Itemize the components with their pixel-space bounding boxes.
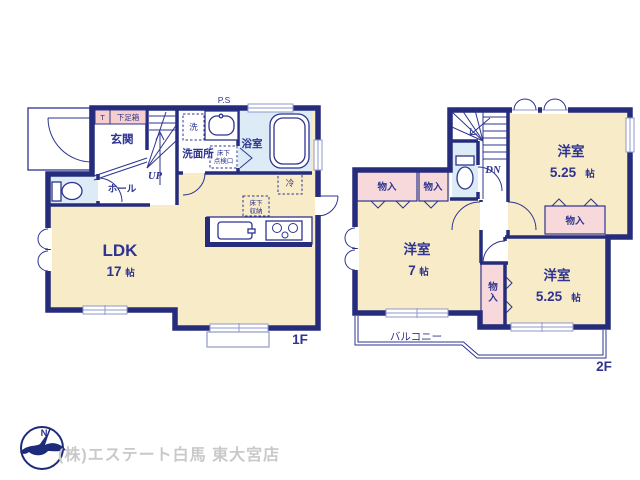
shoe-box-label: 下足箱 [117,112,140,122]
hatch-label-1: 床下 [217,148,231,157]
storage-label-2: 収納 [250,206,263,215]
floor-plan-svg: P.S T 下足箱 玄関 洗 洗面所 床下 点検口 浴室 UP ホール 冷 床下… [0,0,640,480]
ldk-size-unit: 帖 [125,267,135,279]
hatch-label-2: 点検口 [214,156,234,165]
room-south-size-unit: 帖 [571,292,581,304]
window-top-bath [248,104,293,112]
window-east-bath [314,140,322,170]
kitchen-sink-icon [218,222,252,239]
room-south-label: 洋室 [544,267,572,283]
window-west-awning-2 [38,250,52,271]
window-east-room-top [626,118,634,152]
floor-1f: P.S T 下足箱 玄関 洗 洗面所 床下 点検口 浴室 UP ホール 冷 床下… [28,95,338,347]
floor1-label: 1F [292,332,308,347]
company-name: (株)エステート白馬 東大宮店 [58,445,280,464]
window-south-ldk [83,305,127,315]
toilet2-icon [456,156,474,189]
room-west-size-unit: 帖 [419,266,429,278]
window-top-casement-1 [512,99,538,114]
kitchen-back-door [315,196,338,216]
compass-n-label: N [41,428,48,439]
window-west-awning-2f-1 [345,227,359,248]
closet-west-1-label: 物入 [377,181,397,193]
ldk-size: 17 [106,264,121,279]
room-west-size: 7 [408,263,416,278]
floor2-label: 2F [596,359,612,374]
room-west-label: 洋室 [404,241,431,257]
ps-label: P.S [218,95,231,105]
closet-room-top-label: 物入 [565,215,585,227]
window-west-awning-1 [38,228,52,249]
window-west-awning-2f-2 [345,249,359,270]
room-top-size: 5.25 [550,165,577,180]
kitchen-counter [205,217,312,247]
closet-west-2-label: 物入 [423,181,443,193]
up-label: UP [148,171,163,182]
window-south-room-south [511,322,573,332]
balcony-label: バルコニー [390,331,442,343]
room-top-size-unit: 帖 [585,168,595,180]
wash-label: 洗 [189,122,198,132]
genkan-label: 玄関 [111,132,134,146]
dn-label: DN [484,165,501,176]
vanity-sink [205,111,238,140]
storage-label-1: 床下 [250,198,264,207]
room-south-size: 5.25 [536,289,563,304]
shoe-t-label: T [100,113,105,122]
room-top-label: 洋室 [558,143,586,159]
terrace-step [207,332,269,347]
bath-label: 浴室 [242,137,263,150]
fridge-label: 冷 [286,178,295,188]
window-south-room-west [386,308,448,318]
closet-vertical-label-2: 入 [487,293,498,304]
corridor-floor [480,200,508,263]
footer: N (株)エステート白馬 東大宮店 [20,427,280,469]
closet-vertical-label-1: 物 [488,281,498,293]
floor-2f: DN 物入 物入 物入 物 入 洋室 5.25 帖 洋室 7 帖 洋室 5.25… [345,99,634,374]
senmenjo-label: 洗面所 [182,147,214,160]
window-south-terrace [207,323,269,347]
window-top-casement-2 [542,99,568,114]
toilet1-icon [52,182,82,201]
hall-label: ホール [108,184,137,195]
floor-plan-page: P.S T 下足箱 玄関 洗 洗面所 床下 点検口 浴室 UP ホール 冷 床下… [0,0,640,480]
ldk-label: LDK [103,241,139,260]
stove-icon [266,221,302,240]
bathtub-icon [270,114,309,168]
